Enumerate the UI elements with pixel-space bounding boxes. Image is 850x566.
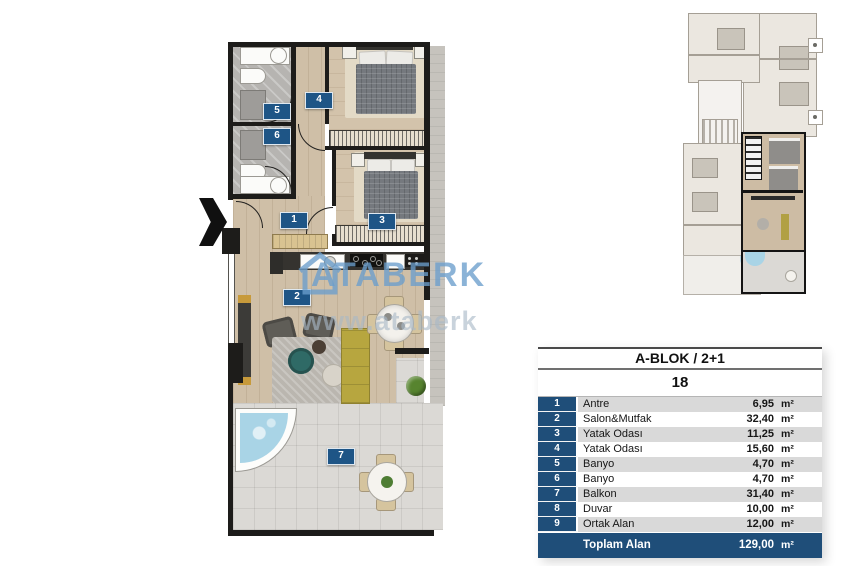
table-row: 2 Salon&Mutfak 32,40 m²	[538, 412, 822, 427]
row-label: Duvar	[578, 502, 710, 517]
room-label-6: 6	[263, 128, 291, 145]
floor-plan-page: 1 2 3 4 5 6 7 ATABERK www.ataberk	[0, 0, 850, 566]
total-value: 129,00	[710, 533, 774, 558]
wall-bed3-left	[332, 150, 336, 206]
overview-bed	[769, 166, 798, 191]
row-value: 12,00	[710, 517, 774, 532]
sink-basin	[270, 47, 287, 64]
wall-top	[228, 42, 430, 47]
wall-pillar	[222, 228, 240, 254]
table-row: 5 Banyo 4,70 m²	[538, 457, 822, 472]
side-table-icon	[312, 340, 326, 354]
row-value: 4,70	[710, 472, 774, 487]
watermark-url: www.ataberk	[301, 306, 478, 336]
wall-segment	[395, 348, 429, 354]
overview-bed	[769, 138, 800, 164]
sofa-icon	[341, 328, 370, 404]
overview-stair-core	[698, 80, 742, 150]
table-row: 1 Antre 6,95 m²	[538, 397, 822, 412]
overview-rug	[757, 218, 769, 230]
room-label-3: 3	[368, 213, 396, 230]
total-unit: m²	[774, 533, 822, 558]
row-unit: m²	[774, 427, 822, 442]
overview-unit	[688, 13, 760, 83]
row-unit: m²	[774, 412, 822, 427]
row-unit: m²	[774, 517, 822, 532]
row-label: Yatak Odası	[578, 442, 710, 457]
overview-sofa	[781, 214, 789, 240]
bed-icon	[356, 64, 416, 114]
balcony-table-icon	[367, 462, 407, 502]
area-table: A-BLOK / 2+1 18 1 Antre 6,95 m² 2 Salon&…	[538, 347, 822, 558]
area-table-unit-number: 18	[538, 370, 822, 397]
overview-bathrooms	[745, 136, 762, 180]
row-unit: m²	[774, 457, 822, 472]
overview-jacuzzi	[745, 252, 765, 266]
row-label: Antre	[578, 397, 710, 412]
total-spacer	[538, 533, 578, 558]
wall-bed4-bed3	[325, 146, 430, 150]
nightstand	[351, 153, 365, 167]
floor-overview-plan	[683, 10, 823, 295]
row-number: 5	[538, 457, 578, 472]
wall-bath-divider	[233, 122, 291, 126]
table-total-row: Toplam Alan 129,00 m²	[538, 533, 822, 558]
row-value: 4,70	[710, 457, 774, 472]
plant-icon	[406, 376, 426, 396]
row-number: 6	[538, 472, 578, 487]
wall-bath-bottom	[228, 194, 296, 199]
row-value: 32,40	[710, 412, 774, 427]
row-value: 15,60	[710, 442, 774, 457]
row-label: Salon&Mutfak	[578, 412, 710, 427]
watermark-brand: ATABERK	[311, 257, 486, 293]
entry-bench	[272, 234, 328, 249]
table-row: 3 Yatak Odası 11,25 m²	[538, 427, 822, 442]
overview-kitchen	[751, 196, 795, 200]
wall-pillar	[228, 343, 243, 383]
toilet	[240, 68, 266, 84]
row-unit: m²	[774, 397, 822, 412]
table-row: 9 Ortak Alan 12,00 m²	[538, 517, 822, 532]
row-value: 6,95	[710, 397, 774, 412]
overview-balcony-highlighted	[741, 252, 806, 294]
room-label-7: 7	[327, 448, 355, 465]
row-value: 11,25	[710, 427, 774, 442]
row-number: 4	[538, 442, 578, 457]
row-unit: m²	[774, 502, 822, 517]
wall-bed3-bottom	[332, 242, 430, 246]
exterior-stone-strip	[430, 46, 445, 406]
row-number: 2	[538, 412, 578, 427]
row-label: Yatak Odası	[578, 427, 710, 442]
wall-bottom	[228, 530, 434, 536]
table-row: 6 Banyo 4,70 m²	[538, 472, 822, 487]
table-row: 7 Balkon 31,40 m²	[538, 487, 822, 502]
wall-left-upper	[228, 42, 233, 200]
row-label: Ortak Alan	[578, 517, 710, 532]
area-table-title: A-BLOK / 2+1	[538, 347, 822, 370]
bed-icon	[364, 171, 418, 219]
wall-left-lower	[228, 383, 233, 535]
coffee-table-icon	[288, 348, 314, 374]
row-unit: m²	[774, 442, 822, 457]
wall-bath-right	[291, 42, 296, 198]
room-label-5: 5	[263, 103, 291, 120]
row-value: 31,40	[710, 487, 774, 502]
row-number: 9	[538, 517, 578, 532]
bed-headboard	[364, 152, 416, 159]
row-label: Banyo	[578, 472, 710, 487]
row-label: Banyo	[578, 457, 710, 472]
row-label: Balkon	[578, 487, 710, 502]
window-left	[228, 254, 235, 343]
overview-feature	[808, 38, 823, 53]
kitchen-tall-cabinet	[270, 252, 283, 274]
total-label: Toplam Alan	[578, 533, 710, 558]
row-unit: m²	[774, 472, 822, 487]
table-row: 4 Yatak Odası 15,60 m²	[538, 442, 822, 457]
row-value: 10,00	[710, 502, 774, 517]
table-row: 8 Duvar 10,00 m²	[538, 502, 822, 517]
overview-unit-highlighted	[741, 132, 806, 252]
row-number: 1	[538, 397, 578, 412]
row-number: 7	[538, 487, 578, 502]
room-label-1: 1	[280, 212, 308, 229]
row-number: 3	[538, 427, 578, 442]
row-number: 8	[538, 502, 578, 517]
room-label-4: 4	[305, 92, 333, 109]
wall-corridor	[325, 42, 329, 124]
row-unit: m²	[774, 487, 822, 502]
overview-feature	[808, 110, 823, 125]
